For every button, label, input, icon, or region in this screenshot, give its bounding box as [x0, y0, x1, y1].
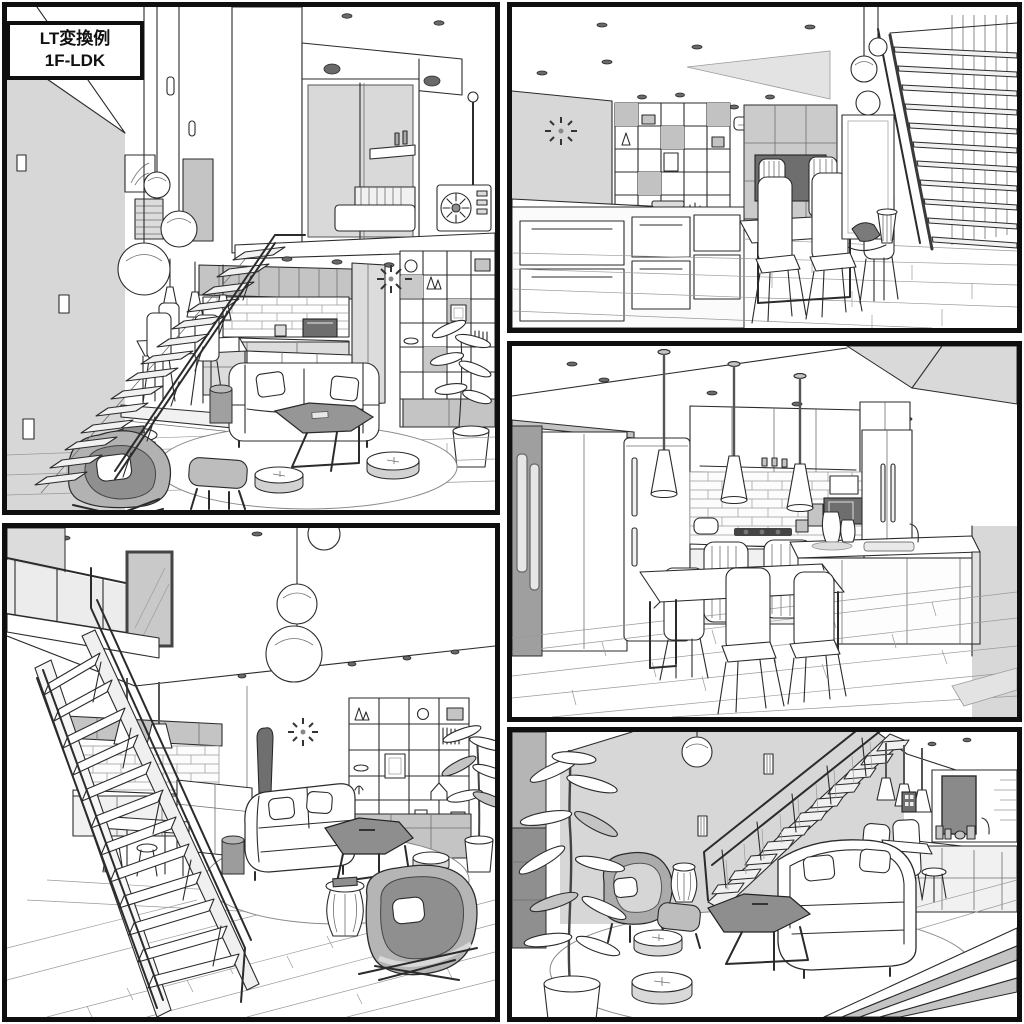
loft-bedroom-window [302, 79, 419, 243]
panel-dining-kitchen-stairs [507, 2, 1022, 333]
ceiling [537, 23, 830, 109]
side-stool [671, 863, 697, 902]
stairs-right [842, 7, 1017, 251]
ac-outdoor-unit [437, 92, 491, 231]
title-line-1: LT変換例 [12, 28, 138, 50]
side-table [326, 877, 364, 936]
pendant-spheres [851, 7, 887, 115]
armchair [359, 865, 477, 980]
living-loft-illustration [7, 7, 495, 510]
entry-door [512, 420, 634, 656]
trash-bin [222, 836, 244, 874]
sunken-living-illustration [512, 732, 1017, 1017]
panel-sunken-living [507, 727, 1022, 1022]
pendant-spheres [266, 528, 340, 682]
page-canvas: LT変換例 1F-LDK [0, 0, 1024, 1024]
title-label-box: LT変換例 1F-LDK [6, 21, 144, 80]
panel-kitchen-counter [507, 341, 1022, 722]
panel-staircase-living [2, 523, 500, 1022]
starburst-clock-icon [288, 718, 318, 746]
kitchen-island [512, 199, 744, 328]
title-line-2: 1F-LDK [12, 50, 138, 72]
kitchen-illustration [512, 346, 1017, 717]
trash-bin [210, 385, 232, 423]
dining-kitchen-illustration [512, 7, 1017, 328]
staircase-living-illustration [7, 528, 495, 1017]
